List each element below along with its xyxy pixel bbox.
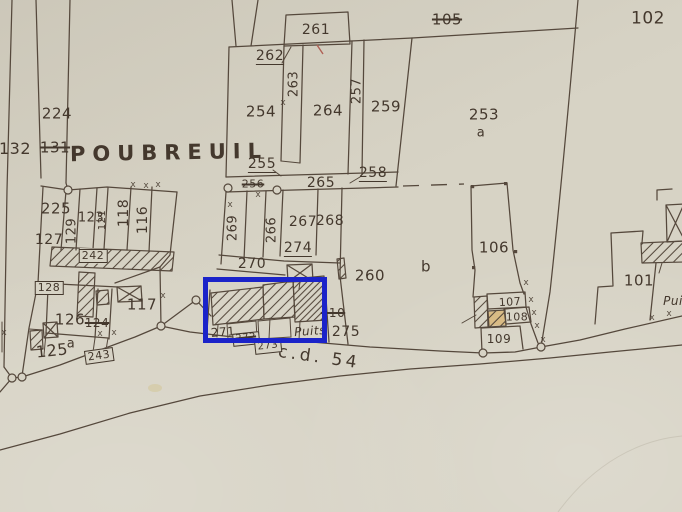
boundary-x-mark: x bbox=[531, 308, 536, 318]
map-label-266: 266 bbox=[266, 217, 279, 243]
map-label-c-d-54: c.d. 54 bbox=[277, 344, 361, 372]
boundary-x-mark: x bbox=[227, 200, 232, 210]
boundary-x-mark: x bbox=[130, 180, 135, 190]
map-label-126: 126 bbox=[55, 313, 85, 328]
map-label-242: 242 bbox=[79, 249, 108, 263]
map-label-102: 102 bbox=[631, 11, 665, 28]
map-label-a: a bbox=[67, 338, 75, 351]
map-label-131: 131 bbox=[40, 141, 70, 156]
map-label-259: 259 bbox=[371, 100, 401, 115]
map-label-132: 132 bbox=[0, 141, 31, 157]
boundary-x-mark: x bbox=[540, 335, 545, 345]
map-label-257: 257 bbox=[351, 78, 364, 104]
map-label-253: 253 bbox=[469, 108, 499, 123]
cadastral-map: POUBREUILc.d. 54132224131225127129123121… bbox=[0, 0, 682, 512]
map-label-261: 261 bbox=[302, 23, 330, 37]
boundary-x-mark: x bbox=[280, 98, 285, 108]
boundary-x-mark: x bbox=[666, 309, 671, 319]
map-label-267: 267 bbox=[289, 215, 317, 229]
map-label-256: 256 bbox=[242, 179, 265, 190]
map-label-260: 260 bbox=[355, 269, 385, 284]
map-label-268: 268 bbox=[316, 214, 344, 228]
map-label-255: 255 bbox=[248, 157, 276, 173]
boundary-x-mark: x bbox=[255, 190, 260, 200]
map-label-275: 275 bbox=[332, 325, 360, 339]
boundary-x-mark: x bbox=[155, 180, 160, 190]
highlight-rectangle bbox=[203, 277, 327, 343]
boundary-x-mark: x bbox=[97, 329, 102, 339]
map-label-a: a bbox=[477, 127, 485, 140]
map-label-225: 225 bbox=[41, 202, 71, 217]
boundary-x-mark: x bbox=[143, 181, 148, 191]
map-label-124: 124 bbox=[85, 317, 109, 329]
map-label-258: 258 bbox=[359, 166, 387, 182]
boundary-x-mark: x bbox=[160, 291, 165, 301]
map-label-128: 128 bbox=[35, 281, 64, 295]
map-label-263: 263 bbox=[288, 71, 301, 97]
boundary-x-mark: x bbox=[649, 313, 654, 323]
map-label-117: 117 bbox=[127, 298, 157, 313]
map-label-poubreuil: POUBREUIL bbox=[70, 141, 268, 165]
map-label-121: 121 bbox=[98, 210, 108, 231]
map-label-116: 116 bbox=[136, 206, 150, 234]
map-label-269: 269 bbox=[227, 215, 240, 241]
map-label-106: 106 bbox=[479, 241, 509, 256]
map-label-107: 107 bbox=[498, 296, 521, 308]
map-label-105: 105 bbox=[432, 13, 462, 28]
map-label-127: 127 bbox=[35, 233, 63, 247]
boundary-x-mark: x bbox=[534, 321, 539, 331]
label-layer: POUBREUILc.d. 54132224131225127129123121… bbox=[0, 0, 682, 512]
map-label-254: 254 bbox=[246, 105, 276, 120]
map-label-129: 129 bbox=[66, 218, 79, 244]
map-label-108: 108 bbox=[506, 312, 529, 323]
map-label-262: 262 bbox=[256, 49, 284, 65]
map-label-101: 101 bbox=[624, 274, 654, 289]
map-label-265: 265 bbox=[307, 176, 335, 190]
boundary-x-mark: x bbox=[111, 328, 116, 338]
map-label-243: 243 bbox=[84, 347, 114, 365]
map-label-b: b bbox=[421, 260, 431, 275]
map-label-109: 109 bbox=[487, 333, 511, 345]
map-label-270: 270 bbox=[238, 257, 266, 271]
map-label-118: 118 bbox=[117, 199, 131, 227]
boundary-x-mark: x bbox=[1, 328, 6, 338]
boundary-x-mark: x bbox=[523, 278, 528, 288]
map-label-125: 125 bbox=[35, 341, 69, 360]
map-label-puits: Puits bbox=[663, 295, 682, 307]
map-label-224: 224 bbox=[42, 107, 72, 122]
map-label-274: 274 bbox=[284, 241, 312, 257]
boundary-x-mark: x bbox=[528, 295, 533, 305]
map-label-264: 264 bbox=[313, 104, 343, 119]
